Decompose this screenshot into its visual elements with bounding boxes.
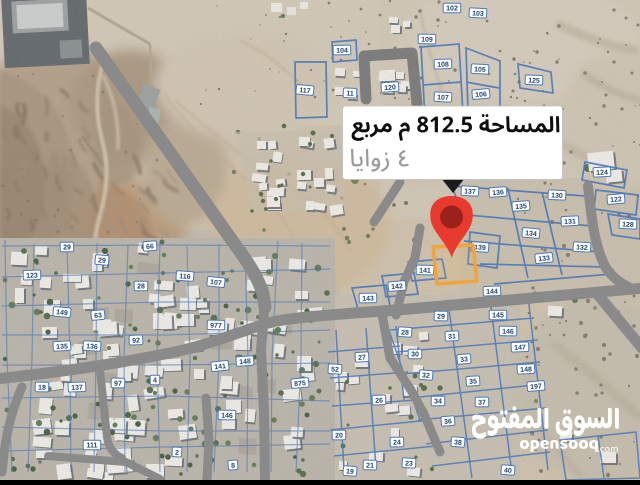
svg-text:117: 117	[299, 87, 311, 95]
svg-text:31: 31	[448, 333, 456, 340]
svg-text:148: 148	[520, 366, 532, 374]
svg-text:123: 123	[26, 272, 38, 279]
svg-text:135: 135	[515, 203, 527, 211]
svg-text:139: 139	[474, 244, 486, 252]
svg-text:21: 21	[366, 463, 374, 470]
svg-text:116: 116	[179, 273, 191, 281]
svg-text:105: 105	[474, 66, 486, 74]
svg-text:104: 104	[336, 48, 348, 55]
svg-text:32: 32	[422, 372, 430, 380]
svg-text:143: 143	[362, 296, 374, 303]
svg-text:26: 26	[375, 398, 383, 405]
svg-text:134: 134	[525, 230, 537, 238]
svg-text:30: 30	[411, 352, 419, 359]
svg-text:97: 97	[114, 381, 122, 388]
svg-text:137: 137	[71, 384, 83, 391]
svg-text:136: 136	[492, 189, 504, 197]
svg-text:149: 149	[56, 309, 68, 317]
svg-text:133: 133	[538, 255, 550, 263]
svg-text:146: 146	[502, 329, 514, 336]
svg-text:875: 875	[294, 380, 306, 388]
svg-text:107: 107	[210, 279, 222, 287]
svg-text:107: 107	[437, 94, 449, 102]
svg-text:102: 102	[446, 6, 458, 13]
svg-text:23: 23	[405, 460, 413, 467]
svg-text:145: 145	[492, 313, 504, 320]
svg-text:40: 40	[504, 467, 512, 475]
svg-text:63: 63	[94, 312, 102, 320]
svg-text:109: 109	[421, 37, 433, 44]
svg-text:146: 146	[221, 413, 233, 420]
svg-text:29: 29	[63, 245, 71, 252]
svg-text:38: 38	[454, 439, 462, 447]
svg-text:11: 11	[346, 91, 354, 98]
svg-text:977: 977	[210, 323, 222, 330]
svg-text:35: 35	[469, 378, 477, 385]
svg-text:33: 33	[460, 356, 468, 364]
svg-text:124: 124	[596, 169, 608, 177]
svg-text:135: 135	[56, 343, 68, 351]
svg-text:128: 128	[622, 221, 634, 229]
svg-text:122: 122	[610, 196, 622, 204]
svg-text:36: 36	[444, 418, 452, 426]
svg-text:125: 125	[528, 77, 540, 84]
svg-text:106: 106	[475, 91, 487, 99]
svg-text:131: 131	[564, 218, 576, 226]
svg-text:34: 34	[434, 399, 442, 406]
svg-text:197: 197	[530, 383, 542, 391]
svg-text:147: 147	[514, 344, 526, 351]
svg-text:132: 132	[576, 244, 588, 252]
svg-text:20: 20	[335, 433, 343, 440]
svg-text:108: 108	[437, 61, 449, 68]
svg-text:28: 28	[137, 284, 145, 291]
svg-text:141: 141	[214, 363, 226, 371]
svg-text:29: 29	[98, 257, 106, 265]
svg-text:18: 18	[38, 385, 46, 392]
svg-text:148: 148	[239, 358, 251, 366]
svg-text:103: 103	[472, 10, 484, 18]
svg-text:141: 141	[419, 268, 431, 275]
svg-text:136: 136	[86, 343, 98, 351]
svg-text:142: 142	[391, 283, 403, 291]
svg-text:4: 4	[153, 378, 157, 385]
svg-text:111: 111	[87, 443, 98, 450]
svg-text:27: 27	[358, 354, 366, 361]
svg-text:120: 120	[384, 84, 396, 92]
svg-text:8: 8	[231, 463, 235, 470]
svg-text:29: 29	[437, 314, 445, 321]
svg-text:37: 37	[478, 400, 486, 407]
svg-text:66: 66	[146, 243, 154, 251]
svg-text:2: 2	[175, 450, 179, 457]
svg-text:137: 137	[464, 188, 476, 196]
svg-text:28: 28	[401, 329, 409, 336]
svg-text:130: 130	[551, 192, 563, 200]
svg-text:24: 24	[393, 440, 401, 447]
svg-text:92: 92	[132, 338, 140, 345]
svg-text:52: 52	[331, 366, 339, 373]
svg-text:144: 144	[486, 288, 498, 295]
svg-text:19: 19	[346, 468, 354, 476]
